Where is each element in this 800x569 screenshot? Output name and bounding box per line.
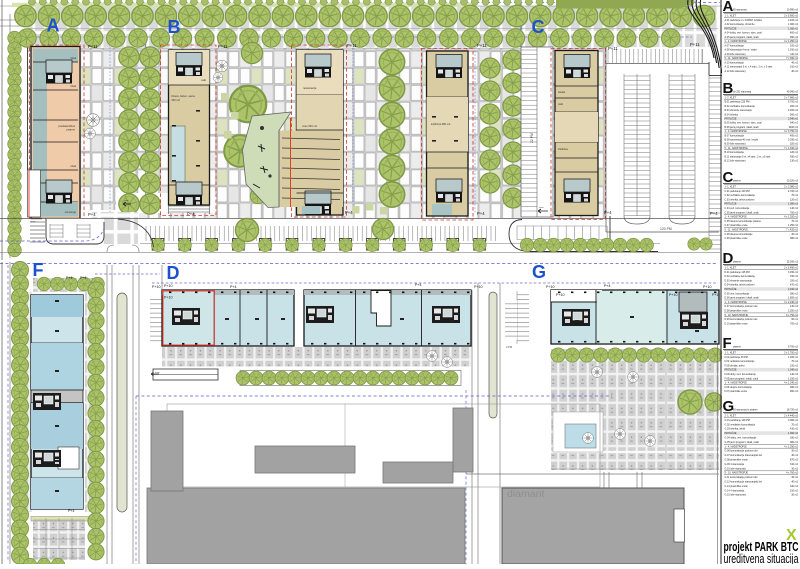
svg-text:380 m2: 380 m2 [790,292,799,295]
svg-text:4 x 1.290 m2: 4 x 1.290 m2 [784,445,798,448]
svg-text:P+11: P+11 [477,43,487,48]
svg-text:G.13 pisarniške enote: G.13 pisarniške enote [725,485,749,488]
svg-text:P+4: P+4 [68,509,75,513]
svg-text:uvoz: uvoz [539,207,544,209]
svg-text:B.06 javni programi, lokali,: B.06 javni programi, lokali, uradi [725,126,759,129]
svg-text:1 -1. KLET: 1 -1. KLET [725,352,737,355]
svg-text:2 x 7.860 m2: 2 x 7.860 m2 [784,97,798,100]
svg-text:C.04 vert. komunikacije: C.04 vert. komunikacije [725,207,751,210]
svg-text:70 m2: 70 m2 [791,194,798,197]
svg-text:410 m2: 410 m2 [790,428,799,431]
svg-text:C.01 parkiranje 100 PM: C.01 parkiranje 100 PM [725,190,750,193]
svg-text:2 x 1.700 m2: 2 x 1.700 m2 [784,352,798,355]
svg-text:120 m2: 120 m2 [790,198,799,201]
svg-text:restavracija: restavracija [303,86,317,90]
svg-text:1 -1. KLET: 1 -1. KLET [725,186,737,189]
svg-text:2 x 5.600 m2: 2 x 5.600 m2 [784,15,798,18]
svg-text:2400 m2: 2400 m2 [789,126,799,129]
svg-text:A.12 lože stanovanj: A.12 lože stanovanj [725,70,746,73]
svg-text:C.08 skupne komunikacije: C.08 skupne komunikacije [725,233,754,236]
svg-text:1.010 m2: 1.010 m2 [788,49,799,52]
svg-text:PRITLIČJE: PRITLIČJE [725,27,737,30]
svg-text:pisarne: pisarne [733,346,742,349]
svg-text:A.07 komunikacije: A.07 komunikacije [725,44,745,47]
svg-text:PRITLIČJE: PRITLIČJE [725,118,737,121]
svg-text:G.15 lože stanovanj: G.15 lože stanovanj [725,494,747,497]
svg-text:B.07 komunikacije: B.07 komunikacije [725,134,745,137]
svg-text:D.08 pisarniške enote: D.08 pisarniške enote [725,310,749,313]
svg-text:70 m2: 70 m2 [791,360,798,363]
svg-text:C.05 javni programi, lokali,: C.05 javni programi, lokali, uradi [725,211,760,214]
svg-text:470 m2: 470 m2 [790,284,799,287]
svg-text:280 m2: 280 m2 [790,386,799,389]
svg-text:7 x 1.190 m2: 7 x 1.190 m2 [784,147,798,150]
svg-text:A.02 komunikacije, shrambe: A.02 komunikacije, shrambe [725,23,756,26]
svg-text:pisarne: pisarne [733,180,742,183]
svg-text:P+4: P+4 [604,284,611,288]
svg-text:F.02 vertikalne komunikacije: F.02 vertikalne komunikacije [725,360,756,363]
svg-text:P+4: P+4 [415,283,422,287]
svg-text:do 252 stanovanj: do 252 stanovanj [733,91,752,94]
svg-text:B.09 lože stanovanj: B.09 lože stanovanj [725,143,746,146]
svg-text:café: café [558,102,563,106]
svg-text:P+10: P+10 [669,293,678,297]
svg-text:P+4: P+4 [80,276,87,280]
svg-text:fitness, bazen, savne: fitness, bazen, savne [172,95,196,98]
svg-text:1 - 4. NADSTROPJE: 1 - 4. NADSTROPJE [725,216,748,219]
svg-text:C.09 pisarniške enote: C.09 pisarniške enote [725,237,749,240]
svg-text:140 m2: 140 m2 [790,305,799,308]
svg-text:P+11: P+11 [218,44,228,49]
svg-text:PRITLIČJE: PRITLIČJE [725,203,737,206]
svg-text:B: B [168,17,181,37]
svg-text:P+4: P+4 [345,210,353,215]
svg-text:3.030 m2: 3.030 m2 [788,139,799,142]
svg-text:40 m2: 40 m2 [791,481,798,484]
svg-text:P+10: P+10 [164,296,173,300]
svg-text:P+10: P+10 [164,284,173,288]
svg-text:120 m2: 120 m2 [790,151,799,154]
svg-text:1 - 4. NADSTROPJE: 1 - 4. NADSTROPJE [725,382,748,385]
svg-text:B.08 stanovanja 40 enot / eta: B.08 stanovanja 40 enot / etažo [725,139,759,142]
svg-text:70 m2: 70 m2 [791,220,798,223]
svg-text:pisarne: pisarne [733,261,742,264]
svg-text:F.01 parkiranje 49 PM: F.01 parkiranje 49 PM [725,356,748,359]
svg-text:G.09 4 stanovanja: G.09 4 stanovanja [725,463,745,466]
svg-text:4 PM: 4 PM [506,345,512,349]
svg-text:P+10: P+10 [546,285,555,289]
svg-text:D.07 komunikacije poslovni de: D.07 komunikacije poslovni del [725,305,758,308]
svg-text:110 m2: 110 m2 [790,53,798,56]
svg-text:380 m2: 380 m2 [790,237,799,240]
svg-text:5 - 10. NADSTROPJE: 5 - 10. NADSTROPJE [725,472,749,475]
svg-text:G.04 lobby, vert. komunikacij: G.04 lobby, vert. komunikacije [725,437,758,440]
svg-text:4 x 3.750 m2: 4 x 3.750 m2 [784,130,798,133]
svg-text:7 x 420 m2: 7 x 420 m2 [786,229,798,232]
svg-text:D.09 komunikacije poslovni de: D.09 komunikacije poslovni del [725,318,758,321]
svg-text:G.10 lože stanovanj: G.10 lože stanovanj [725,467,747,470]
svg-text:650 m2: 650 m2 [790,36,799,39]
svg-text:30 m2: 30 m2 [791,467,798,470]
svg-text:80 stanovanj in pisarne: 80 stanovanj in pisarne [733,409,758,412]
svg-text:1 -1. KLET: 1 -1. KLET [725,15,737,18]
svg-text:5.700 m2: 5.700 m2 [788,101,799,104]
svg-text:320 m2: 320 m2 [790,279,799,282]
svg-text:lokal: lokal [71,164,77,168]
svg-text:F: F [33,260,44,280]
svg-text:40 m2: 40 m2 [791,454,798,457]
svg-text:1.340 m2: 1.340 m2 [788,369,799,372]
svg-text:P+4: P+4 [477,211,485,216]
svg-text:concierge: concierge [65,210,77,214]
svg-text:ureditvena situacija: ureditvena situacija [724,552,799,564]
svg-text:9.700 m2: 9.700 m2 [788,346,799,349]
svg-text:1.380 m2: 1.380 m2 [788,203,799,206]
svg-text:1 -1. KLET: 1 -1. KLET [725,415,737,418]
svg-text:P+11: P+11 [347,43,357,48]
svg-text:700 m2: 700 m2 [790,211,799,214]
svg-text:3.150 m2: 3.150 m2 [788,271,799,274]
svg-text:P+1: P+1 [712,293,719,297]
svg-text:P+11: P+11 [88,44,98,49]
svg-text:D.02 vertikalne komunikacije: D.02 vertikalne komunikacije [725,275,756,278]
svg-text:1.360 m2: 1.360 m2 [788,27,799,30]
svg-text:18.720 m2: 18.720 m2 [787,409,799,412]
svg-text:A.11 stanovanja/ 5 et. x 4 st: A.11 stanovanja/ 5 et. x 4 stan., 2 et. … [725,66,774,69]
svg-text:7 x 390 m2: 7 x 390 m2 [786,57,798,60]
svg-text:B.05 lobby, vert. komun. stan: B.05 lobby, vert. komun. stan., posl. [725,122,763,125]
svg-text:4 x 2.240 m2: 4 x 2.240 m2 [784,301,798,304]
svg-text:5 - 11. NADSTROPJE: 5 - 11. NADSTROPJE [725,147,749,150]
svg-text:870 m2: 870 m2 [790,459,799,462]
svg-text:F.03 tehnika, arhivi: F.03 tehnika, arhivi [725,364,745,367]
svg-text:600 m2: 600 m2 [172,99,181,102]
svg-text:lokal: lokal [71,84,77,88]
svg-text:G.03 tehnika, arhivi: G.03 tehnika, arhivi [725,428,746,431]
svg-text:D.06 javni programi, lokali,: D.06 javni programi, lokali, uradi [725,297,760,300]
svg-text:P+4: P+4 [66,276,73,280]
svg-text:930 m2: 930 m2 [790,155,799,158]
svg-text:180 m2: 180 m2 [790,437,799,440]
svg-text:1.150 m2: 1.150 m2 [788,377,799,380]
svg-text:70 m2: 70 m2 [791,423,798,426]
svg-text:PRITLIČJE: PRITLIČJE [725,369,737,372]
svg-text:22 PM: 22 PM [530,133,534,143]
svg-text:980 m2: 980 m2 [790,441,799,444]
svg-text:D.05 vert. komunikacije: D.05 vert. komunikacije [725,292,751,295]
svg-text:B.10 komunikacije: B.10 komunikacije [725,151,745,154]
svg-text:P+10: P+10 [474,285,483,289]
svg-text:30 m2: 30 m2 [791,450,798,453]
svg-text:pisarne: pisarne [66,128,75,132]
svg-text:1.250 m2: 1.250 m2 [788,224,799,227]
svg-text:lokal: lokal [71,56,77,60]
svg-text:150 m2: 150 m2 [790,275,799,278]
svg-text:D.10 pisarniške enote: D.10 pisarniške enote [725,322,749,325]
svg-text:40 m2: 40 m2 [791,61,798,64]
svg-text:200 m2: 200 m2 [790,105,799,108]
svg-text:knjižnica 380 m2: knjižnica 380 m2 [431,122,451,126]
svg-text:G.01 parkiranje 146 PM: G.01 parkiranje 146 PM [725,419,750,422]
svg-text:3.360 m2: 3.360 m2 [788,419,799,422]
svg-text:5 - 10. NADSTROPJE: 5 - 10. NADSTROPJE [725,314,749,317]
svg-text:10.220 m2: 10.220 m2 [787,180,799,183]
svg-text:G.02 vertikalne komunikacije: G.02 vertikalne komunikacije [725,423,756,426]
svg-text:340 m2: 340 m2 [790,485,799,488]
svg-text:café: café [201,78,206,82]
svg-text:F.04 lobby, vert. komunikacij: F.04 lobby, vert. komunikacije [725,373,757,376]
svg-text:A.10 komunikacije: A.10 komunikacije [725,61,745,64]
svg-text:40 m2: 40 m2 [791,476,798,479]
svg-text:2 x 6.490 m2: 2 x 6.490 m2 [784,267,798,270]
svg-text:320 m2: 320 m2 [790,143,799,146]
svg-text:uvoz: uvoz [155,372,160,374]
svg-text:G.05 javni programi, lokali,: G.05 javni programi, lokali, uradi [725,441,760,444]
svg-text:D.04 tehnika, arhivi poslovni: D.04 tehnika, arhivi poslovni [725,284,755,287]
svg-text:P+10: P+10 [703,285,712,289]
svg-text:2 x 4.440 m2: 2 x 4.440 m2 [784,415,798,418]
svg-text:B.11 stanovanja 5 et. x4 sta: B.11 stanovanja 5 et. x4 stan., 2 et. x3… [725,155,772,158]
svg-text:G.11 komunikacije poslovni de: G.11 komunikacije poslovni del [725,476,758,479]
svg-text:P+10: P+10 [152,285,161,289]
svg-text:1 - 4. NADSTROPJE: 1 - 4. NADSTROPJE [725,130,748,133]
svg-text:140 m2: 140 m2 [790,207,799,210]
svg-text:P+4: P+4 [187,212,195,217]
svg-text:400 m2: 400 m2 [790,32,799,35]
svg-text:banka: banka [558,90,566,94]
svg-text:960 m2: 960 m2 [790,390,799,393]
svg-text:A: A [47,16,60,36]
svg-text:25.260 m2: 25.260 m2 [787,261,799,264]
svg-text:560 m2: 560 m2 [790,113,799,116]
svg-text:C.06 skupne komunikacije pisa: C.06 skupne komunikacije pisarne [725,220,762,223]
svg-text:40 m2: 40 m2 [791,233,798,236]
svg-text:400 m2: 400 m2 [790,134,799,137]
svg-text:310 m2: 310 m2 [790,463,799,466]
svg-text:PRITLIČJE: PRITLIČJE [725,288,737,291]
svg-text:100 m2: 100 m2 [790,44,799,47]
svg-text:B.01 parkiranje 225 PM: B.01 parkiranje 225 PM [725,101,750,104]
svg-text:540 m2: 540 m2 [790,122,799,125]
svg-text:A.01 parkiranje 2 x 100PM, t: A.01 parkiranje 2 x 100PM, tehnika [725,19,763,22]
svg-text:2 x 3.080 m2: 2 x 3.080 m2 [784,186,798,189]
svg-text:1 - 4. NADSTROPJE: 1 - 4. NADSTROPJE [725,445,748,448]
svg-text:P+4: P+4 [88,212,96,217]
svg-text:G.14 4 stanovanja: G.14 4 stanovanja [725,489,745,492]
svg-text:F.05 javni programi, lokali,: F.05 javni programi, lokali, uradi [725,377,759,380]
svg-text:80 stanovanj: 80 stanovanj [733,9,747,12]
svg-text:B.12 lože stanovanj: B.12 lože stanovanj [725,160,746,163]
svg-text:6 x 750 m2: 6 x 750 m2 [786,314,798,317]
svg-text:G.07 komunikacije stanovanjsk: G.07 komunikacije stanovanjski del [725,454,763,457]
svg-text:A.04 lobby, vert. komun. stan: A.04 lobby, vert. komun. stan., posl. [725,32,763,35]
svg-text:150 m2: 150 m2 [790,364,799,367]
svg-text:čistilnica: čistilnica [558,147,568,151]
svg-text:P+4: P+4 [604,210,612,215]
svg-text:5 - 11. NADSTROPJE: 5 - 11. NADSTROPJE [725,229,749,232]
svg-text:D.03 shrambe stanovanja: D.03 shrambe stanovanja [725,279,753,282]
svg-text:2.940 m2: 2.940 m2 [788,118,799,121]
svg-text:F.06 skupne komunikacije: F.06 skupne komunikacije [725,386,753,389]
svg-text:10.990 m2: 10.990 m2 [787,9,799,12]
svg-text:G.06 komunikacije poslovni de: G.06 komunikacije poslovni del [725,450,758,453]
svg-text:uvoz: uvoz [124,200,129,202]
svg-text:PRITLIČJE: PRITLIČJE [725,432,737,435]
svg-text:1 - 4. NADSTROPJE: 1 - 4. NADSTROPJE [725,301,748,304]
svg-text:P+11: P+11 [608,46,618,51]
svg-text:120 PM: 120 PM [660,227,672,231]
svg-text:310 m2: 310 m2 [790,489,799,492]
svg-text:140 m2: 140 m2 [790,373,799,376]
svg-text:D.01 parkiranje 125 PM: D.01 parkiranje 125 PM [725,271,750,274]
svg-text:C.02 vertikalne komunikacije: C.02 vertikalne komunikacije [725,194,756,197]
svg-text:D: D [167,263,180,283]
svg-text:vrtec 630 m2: vrtec 630 m2 [302,124,318,128]
svg-text:P+11: P+11 [690,42,700,47]
svg-text:B.03 shrambe stanovanja: B.03 shrambe stanovanja [725,109,753,112]
svg-text:4 x 1.520 m2: 4 x 1.520 m2 [784,216,798,219]
svg-text:B.04 tehnika: B.04 tehnika [725,113,739,116]
svg-text:P+4: P+4 [710,211,718,216]
svg-text:C: C [532,17,545,37]
svg-text:1.360 m2: 1.360 m2 [788,432,799,435]
svg-text:A.09 lože stanovanj: A.09 lože stanovanj [725,53,746,56]
svg-text:1.400 m2: 1.400 m2 [788,109,799,112]
svg-text:A.05 javni programi, lokali,: A.05 javni programi, lokali, uradi [725,36,759,39]
svg-text:130 m2: 130 m2 [790,160,799,163]
svg-text:predstavništva: predstavništva [58,124,75,128]
svg-text:90 m2: 90 m2 [791,318,798,321]
svg-text:F.07 pisarniške enote: F.07 pisarniške enote [725,390,748,393]
svg-text:1.460 m2: 1.460 m2 [788,356,799,359]
svg-text:G: G [532,262,546,282]
svg-text:2.700 m2: 2.700 m2 [788,190,799,193]
svg-text:4 x 1.240 m2: 4 x 1.240 m2 [784,382,798,385]
svg-text:1.800 m2: 1.800 m2 [788,297,799,300]
svg-text:4 x 1.250 m2: 4 x 1.250 m2 [784,40,798,43]
svg-text:G.12 komunikacije stanovanjsk: G.12 komunikacije stanovanjski del [725,481,763,484]
svg-text:30 m2: 30 m2 [791,494,798,497]
svg-text:P+10: P+10 [556,293,565,297]
svg-text:G.08 pisarniške enote: G.08 pisarniške enote [725,459,749,462]
svg-text:2.200 m2: 2.200 m2 [788,310,799,313]
svg-text:1 -2. KLET: 1 -2. KLET [725,97,737,100]
svg-text:1.000 m2: 1.000 m2 [788,23,799,26]
svg-text:1 -1. KLET: 1 -1. KLET [725,267,737,270]
svg-text:C.07 pisarniške enote: C.07 pisarniške enote [725,224,749,227]
svg-text:2.400 m2: 2.400 m2 [788,19,799,22]
svg-text:P+4: P+4 [230,285,237,289]
svg-text:1 - 4. NADSTROPJE: 1 - 4. NADSTROPJE [725,40,748,43]
svg-text:A.08 stanovanja 4 enot / eta: A.08 stanovanja 4 enot / etažo [725,49,758,52]
svg-text:diamant: diamant [507,488,544,500]
svg-text:C.03 tehnika, arhivi poslovni: C.03 tehnika, arhivi poslovni [725,198,755,201]
svg-text:700 m2: 700 m2 [790,322,799,325]
svg-text:5 - 11. NADSTROPJE: 5 - 11. NADSTROPJE [725,57,749,60]
svg-text:4 x 760 m2: 4 x 760 m2 [786,472,798,475]
svg-text:2.160 m2: 2.160 m2 [788,288,799,291]
svg-text:310 m2: 310 m2 [790,66,799,69]
svg-text:40.990 m2: 40.990 m2 [787,91,799,94]
svg-text:B.02 vertikalne komunikacije: B.02 vertikalne komunikacije [725,105,756,108]
svg-text:40 m2: 40 m2 [791,70,798,73]
